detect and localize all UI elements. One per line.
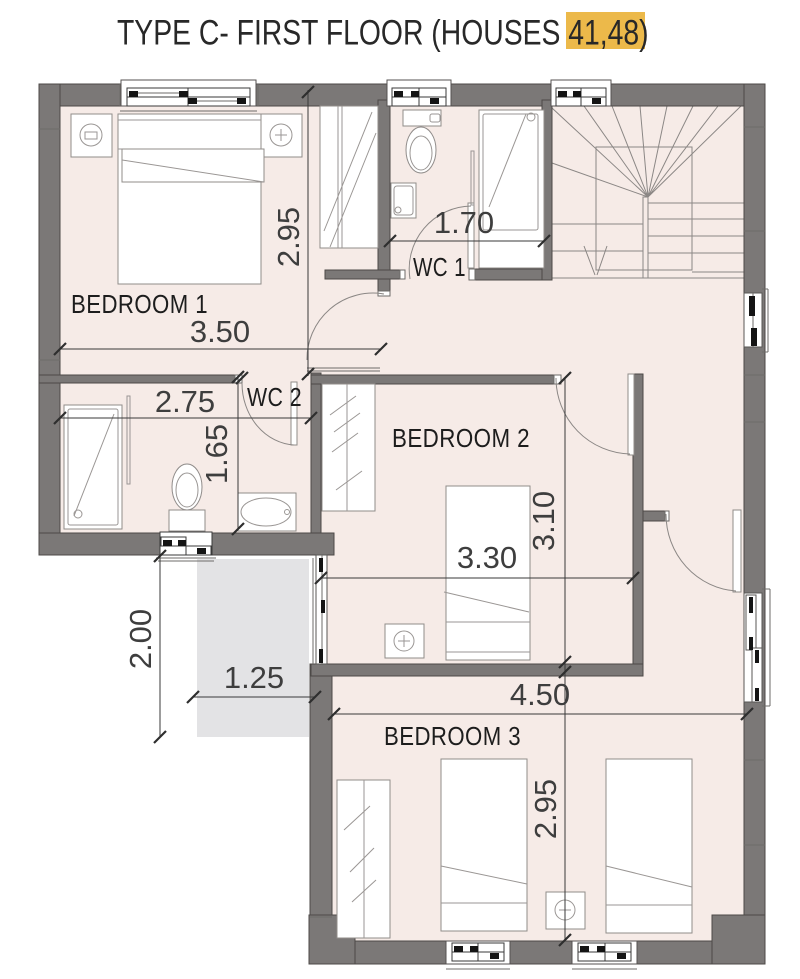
svg-text:2.75: 2.75 xyxy=(155,384,215,419)
svg-text:4.50: 4.50 xyxy=(510,677,570,712)
svg-text:3.10: 3.10 xyxy=(526,491,561,551)
svg-text:WC 2: WC 2 xyxy=(247,382,302,412)
svg-text:1.25: 1.25 xyxy=(224,660,284,695)
svg-text:WC 1: WC 1 xyxy=(413,252,466,282)
svg-text:1.70: 1.70 xyxy=(434,205,494,240)
svg-text:2.95: 2.95 xyxy=(271,207,306,267)
svg-text:3.50: 3.50 xyxy=(190,314,250,349)
svg-text:BEDROOM 1: BEDROOM 1 xyxy=(71,289,208,319)
svg-text:2.95: 2.95 xyxy=(528,779,563,839)
svg-text:1.65: 1.65 xyxy=(199,424,234,484)
svg-text:2.00: 2.00 xyxy=(123,609,158,669)
svg-text:3.30: 3.30 xyxy=(457,540,517,575)
svg-text:BEDROOM 2: BEDROOM 2 xyxy=(392,423,530,453)
svg-text:BEDROOM 3: BEDROOM 3 xyxy=(384,721,521,751)
svg-text:TYPE C- FIRST FLOOR (HOUSES 41: TYPE C- FIRST FLOOR (HOUSES 41,48) xyxy=(117,13,649,53)
